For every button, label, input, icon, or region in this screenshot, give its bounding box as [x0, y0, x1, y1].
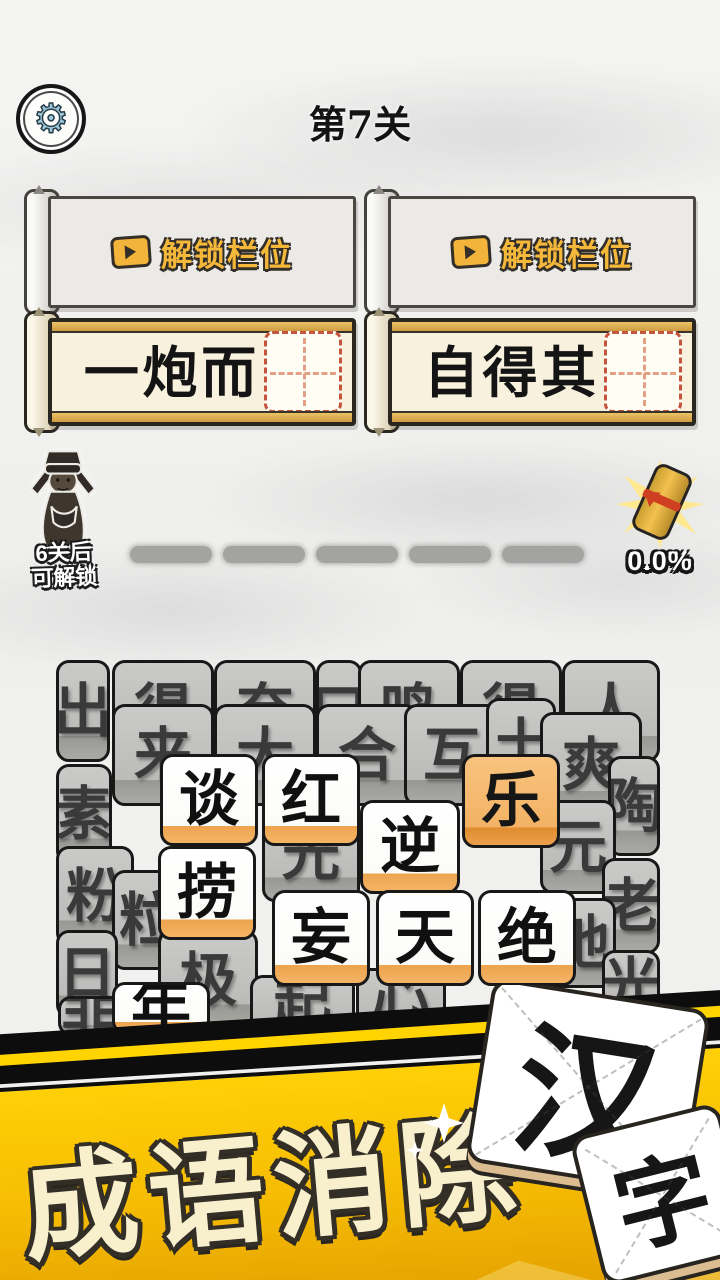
empty-char-slot: [604, 331, 682, 413]
promo-banner[interactable]: 成语消除 汉 字: [0, 985, 720, 1280]
empty-char-slot: [264, 331, 342, 413]
tile-char: 乐: [481, 771, 541, 831]
idiom-char: 得: [482, 345, 537, 400]
tile-char: 逆: [380, 817, 440, 877]
board-tile[interactable]: 天: [376, 890, 474, 986]
level-title: 第7关: [0, 94, 720, 149]
idiom-scroll-1: 一 炮 而: [24, 318, 356, 426]
idiom-chars: 自 得 其: [422, 334, 598, 410]
idiom-chars: 一 炮 而: [82, 334, 258, 410]
unlock-slot-banner-right[interactable]: 解锁栏位: [364, 196, 696, 308]
idiom-scroll-body: 一 炮 而: [48, 318, 356, 426]
unlock-banner-label: 解锁栏位: [501, 230, 633, 275]
board-tile[interactable]: 谈: [160, 754, 258, 846]
idiom-char: 自: [424, 345, 479, 400]
progress-dash: [223, 546, 305, 563]
board-tile-locked: 出: [56, 660, 110, 762]
board-tile[interactable]: 捞: [158, 846, 256, 940]
progress-dash: [502, 546, 584, 563]
video-play-icon: [110, 235, 152, 270]
progress-dash: [409, 546, 491, 563]
unlock-banner-body: 解锁栏位: [48, 196, 356, 308]
tile-char: 妄: [291, 908, 351, 968]
tile-char: 绝: [497, 908, 557, 968]
progress-dashes: [130, 546, 584, 563]
board-tile[interactable]: 绝: [478, 890, 576, 986]
npc-caption-line1: 6关后: [7, 538, 120, 567]
npc-unlock-caption: 6关后 可解锁: [7, 538, 121, 592]
video-play-icon: [450, 235, 492, 270]
progress-percent: 0.0%: [612, 546, 708, 577]
tile-char: 捞: [177, 863, 237, 923]
idiom-char: 炮: [142, 345, 197, 400]
progress-reward: 0.0%: [612, 458, 708, 580]
tile-char: 红: [281, 770, 341, 830]
idiom-char: 一: [84, 345, 139, 400]
board-tile-selected[interactable]: 乐: [462, 754, 560, 848]
idiom-char: 而: [201, 345, 256, 400]
game-screen: ⚙ 第7关 解锁栏位 解锁栏位 一 炮 而 自: [0, 0, 720, 1280]
progress-dash: [130, 546, 212, 563]
idiom-scroll-2: 自 得 其: [364, 318, 696, 426]
tile-char: 出: [56, 682, 110, 740]
unlock-banner-label: 解锁栏位: [161, 230, 293, 275]
board-tile[interactable]: 红: [262, 754, 360, 846]
tile-char: 天: [395, 908, 455, 968]
idiom-char: 其: [541, 345, 596, 400]
locked-character-figure: [24, 446, 102, 550]
npc-caption-line2: 可解锁: [8, 563, 121, 592]
tile-char: 素: [56, 785, 112, 843]
idiom-scroll-body: 自 得 其: [388, 318, 696, 426]
board-tile[interactable]: 逆: [360, 800, 460, 894]
progress-dash: [316, 546, 398, 563]
unlock-slot-banner-left[interactable]: 解锁栏位: [24, 196, 356, 308]
board-tile[interactable]: 妄: [272, 890, 370, 986]
tile-char: 谈: [179, 770, 239, 830]
unlock-banner-body: 解锁栏位: [388, 196, 696, 308]
